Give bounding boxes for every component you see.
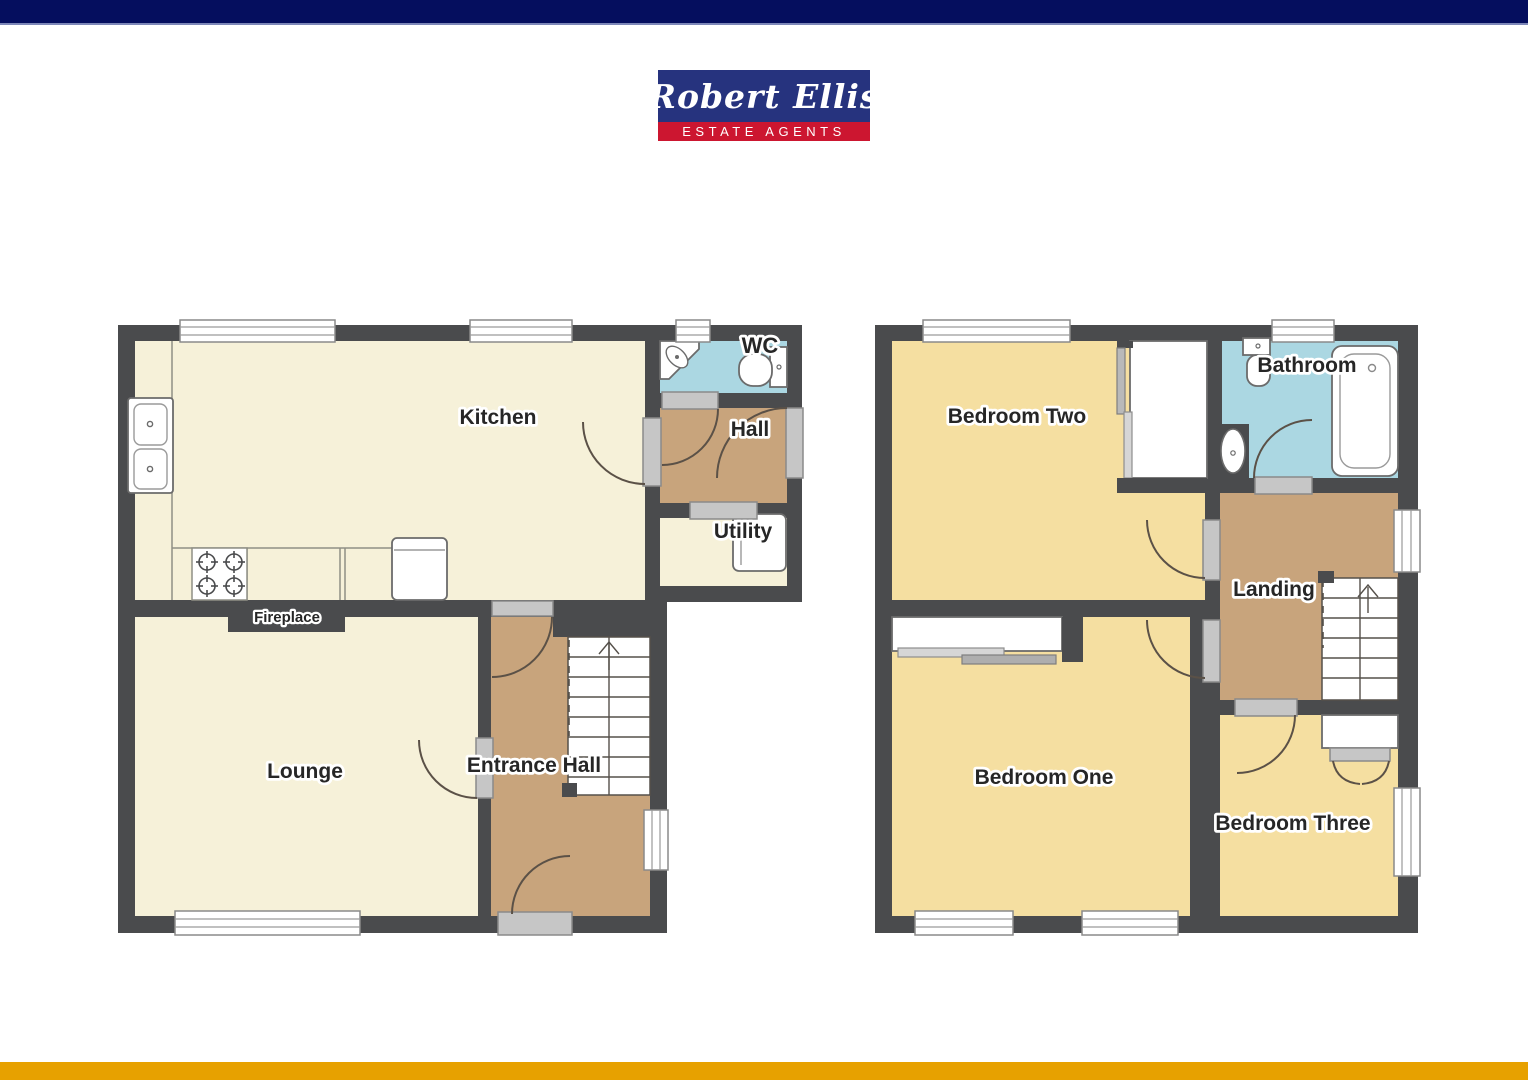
bedroom-three-label: Bedroom Three (1215, 812, 1370, 835)
floorplan-svg: Kitchen WC Hall Utility Lounge Entrance … (0, 0, 1528, 1080)
window-kitchen-left (180, 320, 335, 342)
hall-label: Hall (731, 418, 770, 441)
stair-bulkhead-wall (553, 602, 650, 637)
door-hall-utility (690, 502, 757, 519)
first-floor-stairs (1318, 571, 1398, 700)
door-bedroom-three (1235, 699, 1297, 716)
window-kitchen-right (470, 320, 572, 342)
window-bathroom (1272, 320, 1334, 342)
bathroom-basin (1216, 424, 1249, 480)
window-entrance-hall (644, 810, 668, 870)
fireplace-label: Fireplace (254, 609, 320, 626)
door-front-entrance (498, 912, 572, 935)
kitchen-appliance (392, 538, 447, 600)
kitchen-label: Kitchen (459, 406, 536, 429)
window-bedroom-two (923, 320, 1070, 342)
window-lounge (175, 911, 360, 935)
door-side-entrance (786, 408, 803, 478)
door-bedroom-one (1203, 620, 1220, 682)
utility-label: Utility (714, 520, 773, 543)
window-wc (676, 320, 710, 342)
door-kitchen-hall (643, 418, 661, 486)
kitchen-sink (128, 398, 173, 493)
bedroom-one-wardrobe (892, 617, 1083, 664)
window-bedroom-three (1394, 788, 1420, 876)
bedroom-two-wardrobe (1117, 341, 1207, 493)
wc-label: WC (742, 333, 779, 358)
window-bedroom-one-right (1082, 911, 1178, 935)
lounge-label: Lounge (267, 760, 343, 783)
ground-floor-plan: Kitchen WC Hall Utility Lounge Entrance … (118, 320, 803, 935)
door-wc-hall (662, 392, 718, 409)
entrance-hall-label: Entrance Hall (467, 754, 601, 777)
first-floor-plan: Bedroom Two Bathroom Landing Bedroom One… (875, 320, 1420, 935)
window-landing (1394, 510, 1420, 572)
door-kitchen-entrance (492, 601, 553, 616)
landing-label: Landing (1233, 578, 1315, 601)
door-bedroom-two (1203, 520, 1220, 580)
bedroom-one-label: Bedroom One (975, 766, 1114, 789)
bathroom-label: Bathroom (1257, 354, 1356, 377)
window-bedroom-one-left (915, 911, 1013, 935)
floorplan-page: Robert Ellis ESTATE AGENTS (0, 0, 1528, 1080)
bottom-accent-bar (0, 1062, 1528, 1080)
bedroom-two-label: Bedroom Two (948, 405, 1086, 428)
door-bathroom (1255, 477, 1312, 494)
